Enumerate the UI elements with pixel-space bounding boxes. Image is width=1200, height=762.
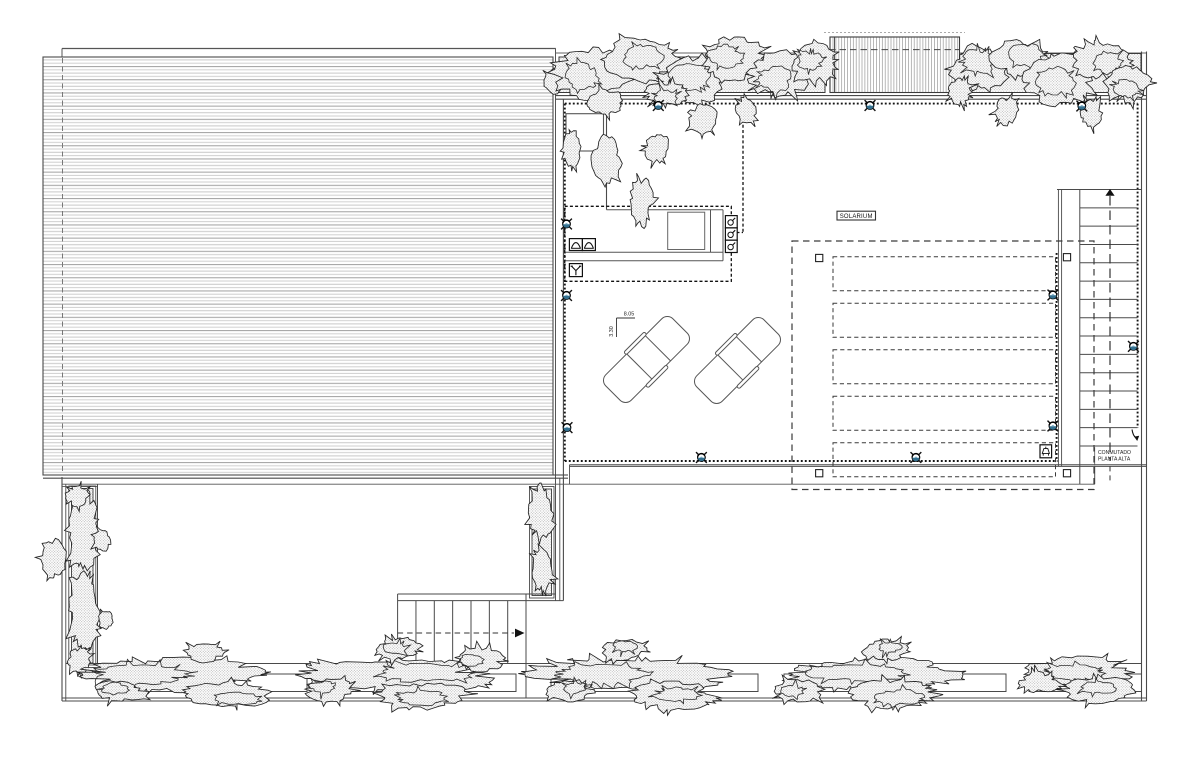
svg-text:SOLARIUM: SOLARIUM xyxy=(840,214,873,220)
svg-text:PLANTA ALTA: PLANTA ALTA xyxy=(1098,456,1131,462)
svg-text:3.30: 3.30 xyxy=(609,326,615,337)
svg-text:8.05: 8.05 xyxy=(624,312,635,318)
svg-text:CONMUTADO: CONMUTADO xyxy=(1098,450,1131,456)
